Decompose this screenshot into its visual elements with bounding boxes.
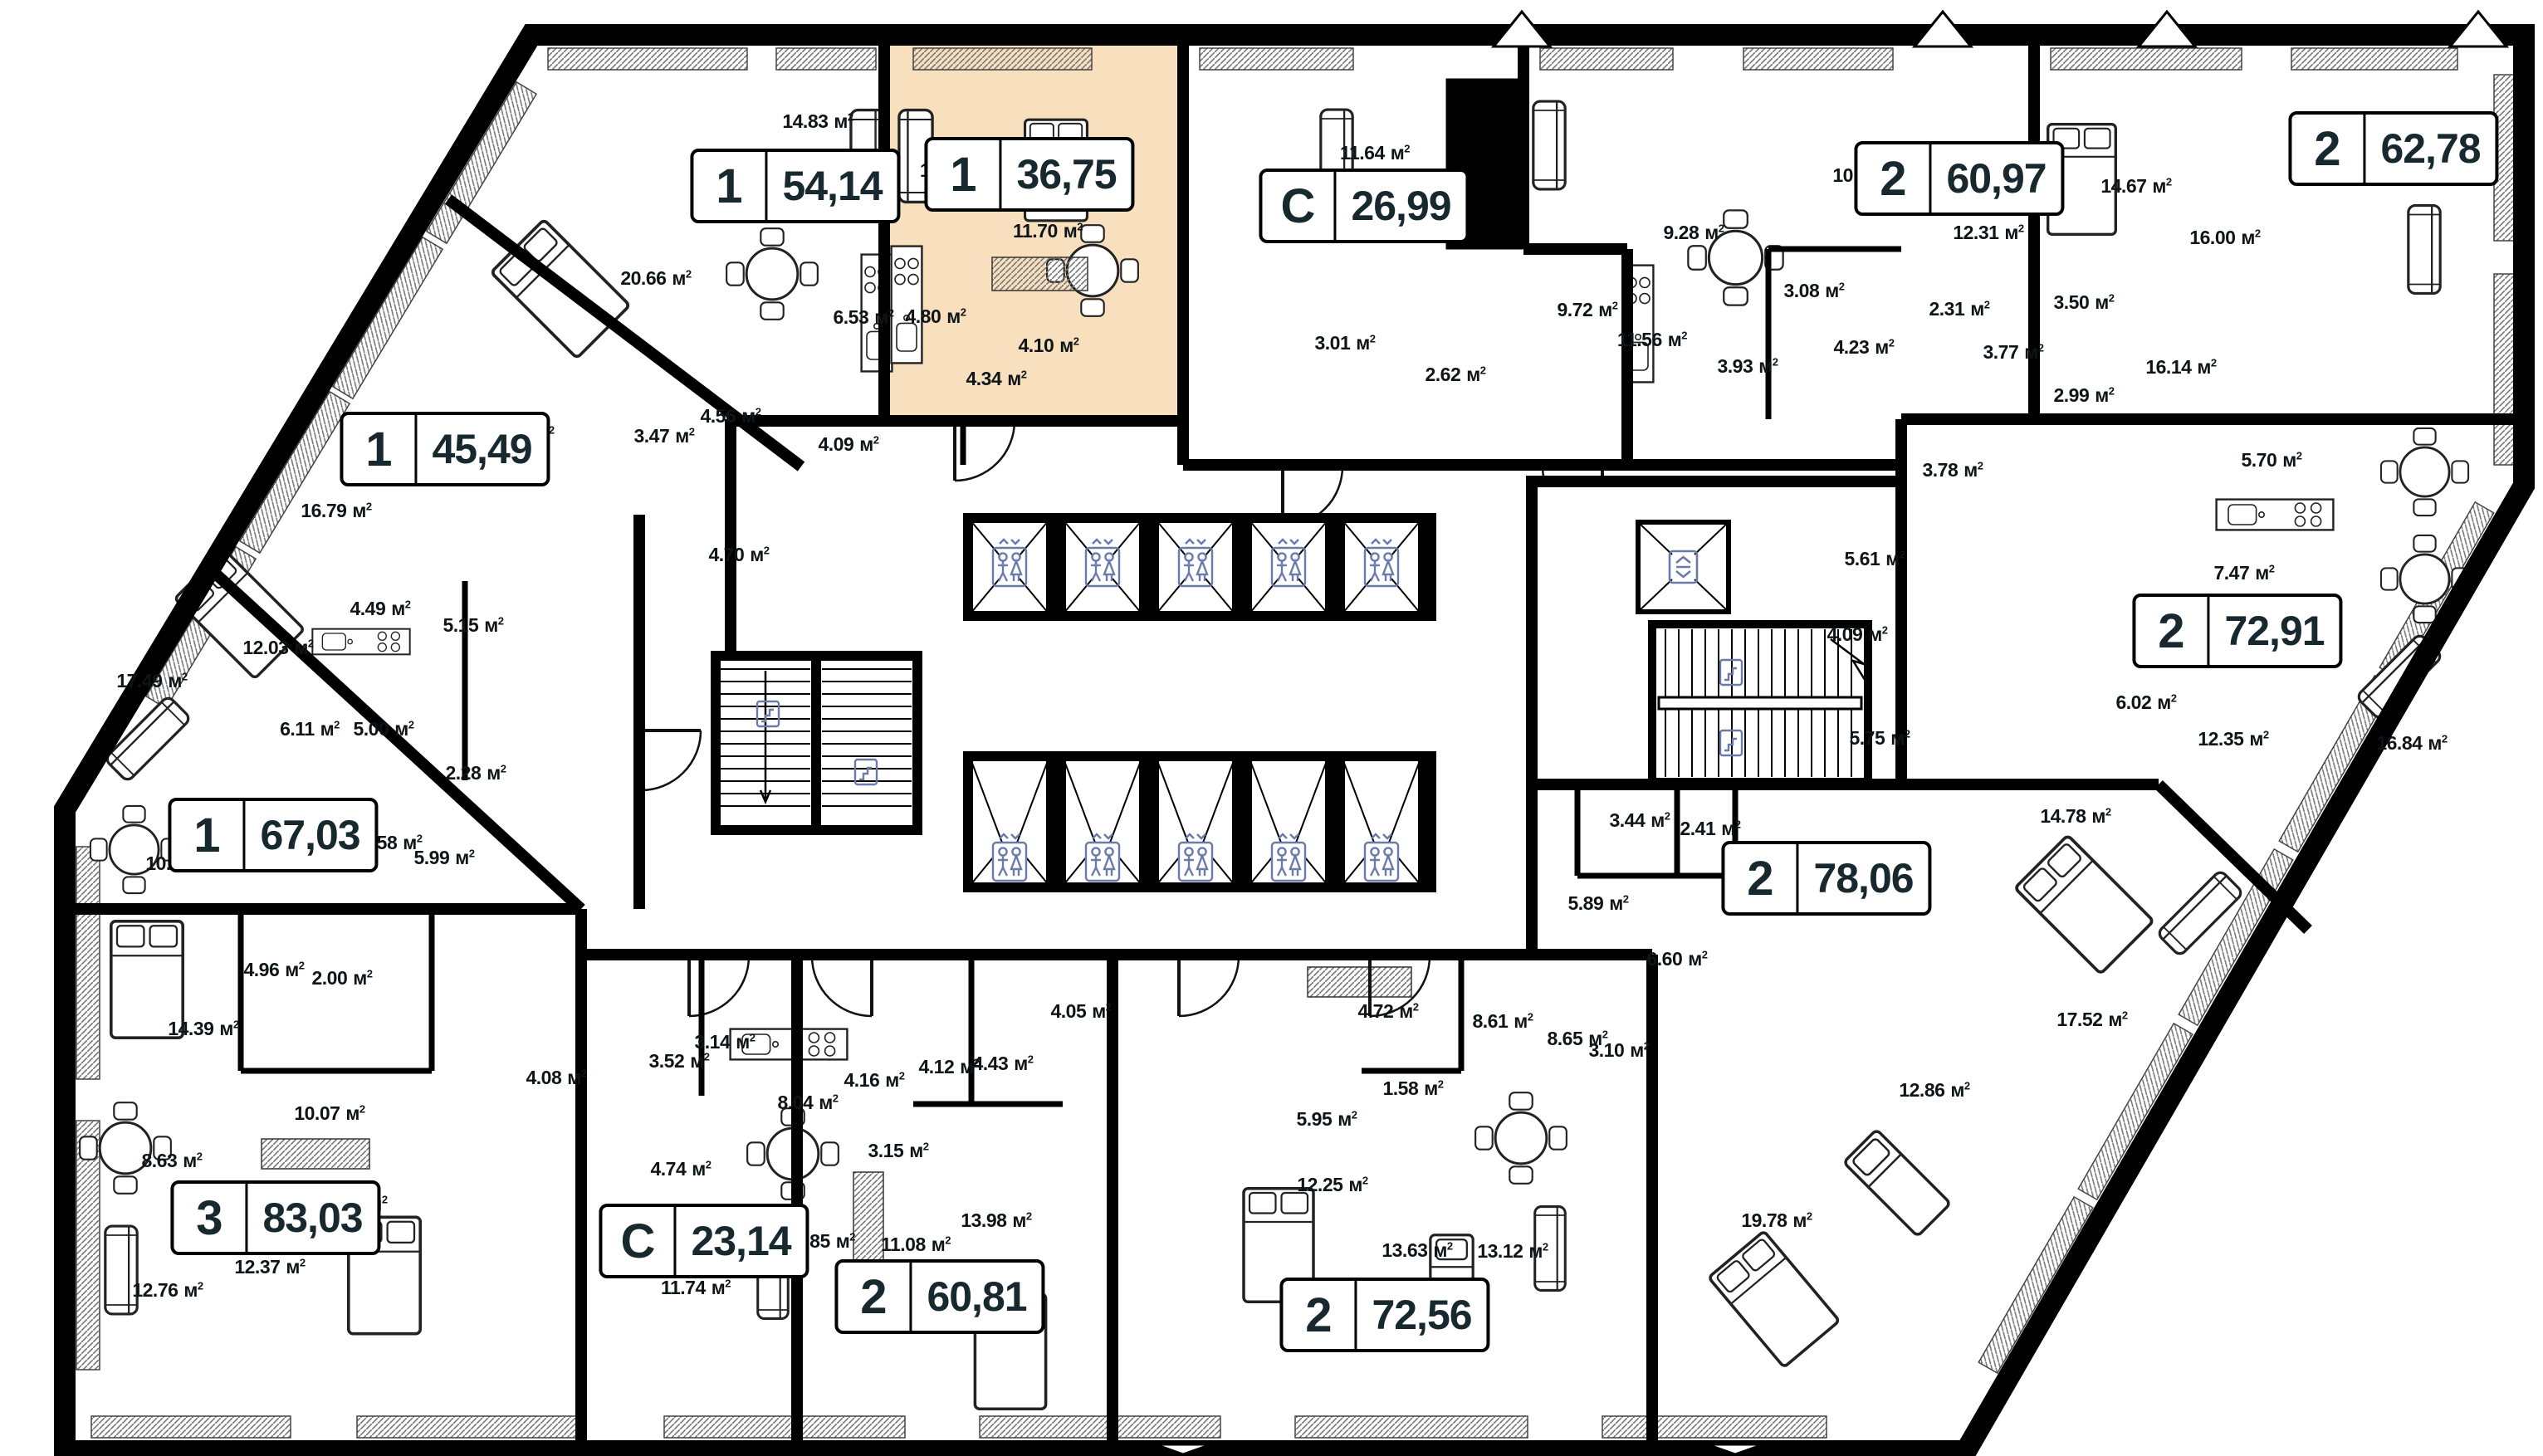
room-area-label: 6.60м2	[1646, 948, 1707, 970]
room-area-label: 4.05м2	[1050, 1000, 1111, 1023]
room-area-label: 5.95м2	[1296, 1108, 1357, 1131]
unit-badge[interactable]: 167,03	[168, 798, 378, 872]
room-area-label: 4.70м2	[708, 544, 769, 566]
unit-area-value: 62,78	[2365, 115, 2495, 183]
room-area-label: 2.62м2	[1425, 364, 1485, 386]
room-area-label: 5.75м2	[1849, 727, 1910, 750]
room-area-label: 4.09м2	[818, 433, 878, 456]
unit-rooms-count: 2	[1857, 144, 1931, 213]
room-area-label: 11.08м2	[881, 1234, 951, 1256]
unit-rooms-count: 3	[174, 1184, 247, 1252]
room-area-label: 3.44м2	[1609, 809, 1670, 832]
unit-area-value: 83,03	[247, 1184, 377, 1252]
room-area-label: 4.43м2	[972, 1053, 1033, 1075]
room-area-label: 8.61м2	[1472, 1010, 1533, 1033]
room-area-label: 4.49м2	[350, 598, 410, 620]
room-area-label: 16.00м2	[2189, 227, 2260, 249]
room-area-label: 9.72м2	[1557, 299, 1617, 321]
room-area-label: 4.09м2	[1827, 623, 1887, 646]
unit-rooms-count: С	[1262, 172, 1336, 240]
room-area-label: 6.02м2	[2115, 691, 2176, 714]
room-area-label: 4.80м2	[905, 305, 966, 328]
room-area-label: 12.31м2	[1953, 222, 2023, 244]
room-area-label: 14.67м2	[2100, 175, 2171, 198]
room-area-label: 3.14м2	[694, 1031, 755, 1053]
room-area-label: 8.04м2	[777, 1092, 838, 1114]
unit-rooms-count: 2	[2135, 597, 2209, 665]
room-area-label: 3.08м2	[1783, 280, 1844, 302]
room-area-label: 5.00м2	[353, 718, 413, 740]
room-area-label: 12.37м2	[234, 1256, 305, 1278]
unit-area-value: 60,97	[1931, 144, 2061, 213]
floor-plan: 14.83м220.66м26.53м24.56м24.09м23.47м214…	[0, 0, 2543, 1456]
unit-badge[interactable]: 272,91	[2132, 594, 2342, 668]
unit-area-value: 72,56	[1357, 1281, 1486, 1349]
room-area-label: 4.23м2	[1833, 336, 1894, 359]
room-area-label: 5.89м2	[1567, 892, 1628, 915]
unit-area-value: 78,06	[1798, 844, 1928, 912]
unit-rooms-count: 1	[171, 801, 245, 869]
room-area-label: 4.74м2	[650, 1158, 711, 1180]
room-area-label: 2.31м2	[1929, 298, 1989, 320]
room-area-label: 9.28м2	[1663, 222, 1724, 244]
room-area-label: 4.16м2	[844, 1069, 904, 1092]
room-area-label: 4.12м2	[918, 1056, 979, 1078]
unit-rooms-count: 1	[927, 140, 1001, 208]
unit-rooms-count: 1	[693, 152, 767, 220]
room-area-label: 6.53м2	[833, 306, 893, 329]
room-area-label: 7.47м2	[2213, 562, 2274, 584]
room-area-label: 4.08м2	[526, 1067, 586, 1089]
room-area-label: 3.15м2	[868, 1140, 928, 1162]
room-area-label: 2.28м2	[445, 762, 506, 784]
unit-badge[interactable]: 145,49	[340, 412, 550, 486]
room-area-label: 19.78м2	[1741, 1209, 1812, 1232]
unit-badge[interactable]: С23,14	[599, 1204, 809, 1278]
room-area-label: 13.63м2	[1382, 1239, 1452, 1262]
room-area-label: 3.01м2	[1314, 332, 1375, 354]
room-area-label: 2.00м2	[311, 967, 372, 989]
unit-badge[interactable]: С26,99	[1259, 169, 1469, 243]
room-area-label: 6.11м2	[280, 718, 340, 740]
unit-area-value: 72,91	[2209, 597, 2339, 665]
room-area-label: 17.52м2	[2056, 1009, 2127, 1031]
room-area-label: 11.70м2	[1013, 220, 1083, 242]
unit-area-value: 45,49	[417, 415, 546, 483]
unit-area-value: 60,81	[912, 1263, 1041, 1331]
room-area-label: 3.78м2	[1922, 459, 1983, 481]
unit-rooms-count: 1	[343, 415, 417, 483]
room-area-label: 16.14м2	[2145, 356, 2216, 379]
unit-rooms-count: 2	[2291, 115, 2365, 183]
room-area-label: 12.25м2	[1297, 1174, 1367, 1196]
unit-badge[interactable]: 260,81	[834, 1259, 1044, 1334]
unit-rooms-count: 2	[1283, 1281, 1357, 1349]
room-area-label: 12.03м2	[242, 637, 313, 659]
room-area-label: 14.78м2	[2040, 805, 2110, 828]
unit-rooms-count: С	[602, 1207, 676, 1275]
room-area-label: 3.77м2	[1983, 341, 2043, 364]
room-area-label: 12.76м2	[132, 1279, 203, 1302]
room-area-label: 4.56м2	[700, 405, 760, 428]
unit-badge-selected[interactable]: 136,75	[924, 137, 1134, 212]
unit-area-value: 67,03	[245, 801, 374, 869]
room-area-label: 13.12м2	[1477, 1240, 1548, 1263]
unit-badge[interactable]: 272,56	[1279, 1278, 1489, 1352]
room-area-label: 14.83м2	[782, 110, 853, 133]
room-area-label: 14.39м2	[168, 1018, 238, 1040]
room-area-label: 3.52м2	[648, 1050, 709, 1072]
room-area-label: 10.07м2	[294, 1102, 364, 1125]
room-area-label: 12.35м2	[2198, 728, 2268, 750]
room-area-label: 11.56м2	[1617, 329, 1687, 351]
room-area-label: 16.79м2	[301, 500, 371, 522]
room-area-label: 3.47м2	[633, 425, 694, 447]
unit-badge[interactable]: 262,78	[2288, 111, 2498, 186]
room-area-label: 16.84м2	[2376, 732, 2447, 755]
room-area-label: 5.70м2	[2241, 449, 2301, 471]
unit-badge[interactable]: 278,06	[1721, 841, 1931, 916]
unit-rooms-count: 2	[1724, 844, 1798, 912]
unit-badge[interactable]: 154,14	[690, 149, 900, 223]
room-area-label: 5.61м2	[1844, 548, 1905, 570]
room-area-label: 3.93м2	[1717, 355, 1778, 378]
room-area-label: 5.15м2	[443, 614, 503, 637]
room-area-label: 4.34м2	[966, 368, 1026, 390]
unit-area-value: 23,14	[676, 1207, 805, 1275]
room-area-label: 5.99м2	[413, 847, 474, 869]
room-area-label: 13.98м2	[961, 1209, 1031, 1232]
room-area-label: 3.10м2	[1588, 1039, 1649, 1062]
room-area-label: 11.64м2	[1340, 142, 1410, 164]
unit-area-value: 36,75	[1001, 140, 1131, 208]
room-area-label: 17.49м2	[116, 670, 187, 692]
room-area-label: 2.99м2	[2053, 384, 2114, 407]
room-area-label: 4.96м2	[243, 959, 304, 981]
room-area-label: 20.66м2	[620, 267, 691, 290]
room-area-label: 2.41м2	[1680, 818, 1740, 840]
unit-area-value: 26,99	[1336, 172, 1465, 240]
room-area-label: 4.10м2	[1018, 335, 1078, 357]
room-area-label: 12.86м2	[1899, 1079, 1969, 1102]
room-area-label: 3.50м2	[2053, 291, 2114, 314]
room-area-label: 4.72м2	[1357, 1000, 1418, 1023]
room-area-label: 11.74м2	[661, 1277, 731, 1299]
room-area-label: 1.58м2	[1382, 1077, 1443, 1100]
unit-area-value: 54,14	[767, 152, 897, 220]
unit-badge[interactable]: 383,03	[170, 1180, 380, 1255]
room-area-label: 8.63м2	[141, 1150, 202, 1172]
unit-badge[interactable]: 260,97	[1854, 141, 2064, 216]
unit-rooms-count: 2	[838, 1263, 912, 1331]
